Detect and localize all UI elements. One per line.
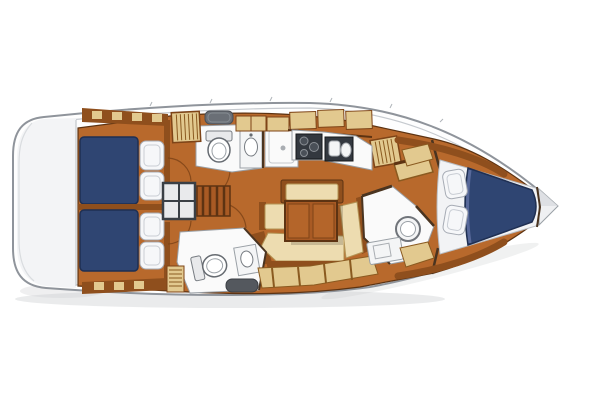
stove-burner [301, 150, 308, 157]
step-pad [226, 279, 258, 292]
cabinet [290, 111, 317, 129]
pillow-outer [442, 168, 469, 199]
aft-cabin-port [80, 108, 168, 204]
galley-sink-oval [341, 143, 351, 157]
stove-burner [310, 143, 319, 152]
settee-cushion-top [286, 184, 338, 200]
floor-plan-canvas [0, 0, 600, 400]
toilet-bowl [208, 138, 230, 162]
pillow [442, 168, 469, 199]
berth-mattress [80, 137, 138, 204]
pillow [140, 242, 164, 269]
bow-locker [537, 187, 558, 227]
pillow [140, 141, 164, 170]
yacht-floor-plan [0, 0, 600, 400]
pillow [442, 204, 469, 235]
aft-head-starboard [167, 228, 266, 293]
louvered-locker [171, 111, 201, 142]
table-leaf [288, 204, 309, 238]
trim-ticks [94, 281, 144, 290]
stern-transom [17, 118, 76, 288]
galley-sink-rect [329, 141, 340, 156]
louvered-locker [167, 266, 184, 292]
companionway [163, 183, 230, 219]
round-basin-inner [401, 222, 416, 237]
bulkhead-aft-top [164, 120, 170, 182]
sink [234, 244, 261, 275]
cabinet [318, 110, 345, 128]
cabinet [267, 117, 289, 131]
shower-drain [281, 146, 286, 151]
cabinet [346, 111, 373, 130]
pillow-outer [442, 204, 469, 235]
settee-cushion-left [265, 204, 286, 229]
pillow [140, 213, 164, 240]
cabin-divider [78, 204, 166, 210]
sink-faucet [249, 133, 252, 136]
stove-burner [300, 137, 308, 145]
table-leaf [313, 204, 334, 238]
sink-basin [245, 138, 258, 156]
berth-mattress [80, 210, 138, 271]
pillow [140, 172, 164, 200]
